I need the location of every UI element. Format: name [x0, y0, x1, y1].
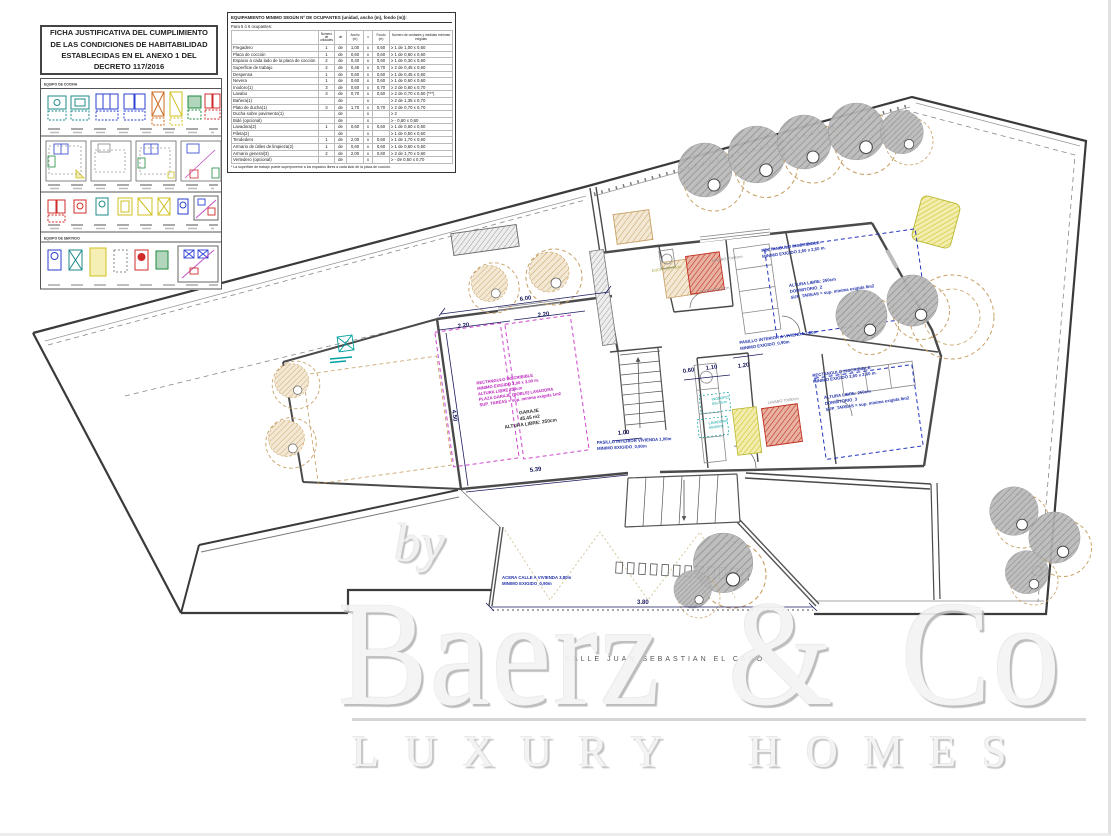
cell-units: 1 [319, 51, 335, 58]
annotation-hall1: PASILLO INTERIOR A VIVIENDA 1,20m MINIMO… [739, 329, 819, 351]
cell-de: de [335, 104, 347, 111]
cell-de: de [335, 45, 347, 52]
cell-depth [373, 130, 390, 137]
cell-depth: 0,60 [373, 45, 390, 52]
cell-item: Vertedero (opcional) [232, 157, 319, 164]
cell-width: 1,70 [347, 104, 364, 111]
cell-width: 0,45 [347, 64, 364, 71]
cell-width: 2,00 [347, 137, 364, 144]
table-row: Nevera 1 de 0,60 x 0,60 ≥ 1 de 0,60 x 0,… [232, 78, 453, 85]
equipment-table-footnote: * La superficie de trabajo puede superpo… [231, 165, 452, 170]
title-block: FICHA JUSTIFICATIVA DEL CUMPLIMIENTO DE … [40, 25, 218, 75]
dim-bath-a: 0.60 [682, 367, 695, 375]
col-header-units: Número de unidades [319, 31, 335, 45]
cell-units: 3 [319, 91, 335, 98]
annotation-line: ACERA CALLE A VIVIENDA 3,80m [502, 575, 571, 580]
table-row: Inodoro(1) 3 de 0,60 x 0,70 ≥ 2 de 0,60 … [232, 84, 453, 91]
cell-depth [373, 97, 390, 104]
legend-graphics: EQUIPO DE COCINA [40, 78, 222, 290]
table-row: Fregadero 1 de 1,00 x 0,60 ≥ 1 de 1,00 x… [232, 45, 453, 52]
equipment-table-title: EQUIPAMIENTO MINIMO SEGÚN Nº DE OCUPANTE… [231, 15, 452, 23]
street-label: CALLE JUAN SEBASTIAN EL CANO [565, 656, 765, 663]
cell-de: de [335, 84, 347, 91]
cell-required: ≥ 1 de 0,45 x 0,60 [390, 71, 453, 78]
cell-item: Espacio a cada lado de la placa de cocci… [232, 58, 319, 65]
cell-x: x [364, 144, 373, 151]
cell-x: x [364, 51, 373, 58]
cell-de: de [335, 144, 347, 151]
annotation-garage-rect: RECTANGULO INSCRIBIBLE MINIMO EXIGIDO 3,… [476, 369, 562, 407]
cell-de: de [335, 51, 347, 58]
cell-units [319, 130, 335, 137]
cell-required: ≥ 2 de 0,70 x 0,70 [390, 104, 453, 111]
cell-units: 1 [319, 137, 335, 144]
cell-x: x [364, 45, 373, 52]
cell-units [319, 111, 335, 118]
cell-required: ≥ 2 de 1,35 x 0,70 [390, 97, 453, 104]
title-block-text: FICHA JUSTIFICATIVA DEL CUMPLIMIENTO DE … [48, 27, 210, 73]
cell-depth [373, 111, 390, 118]
cell-width [347, 130, 364, 137]
cell-depth: 0,60 [373, 150, 390, 157]
cell-depth: 0,70 [373, 64, 390, 71]
cell-required: ≥ 1 de 1,00 x 0,60 [390, 45, 453, 52]
cell-units: 1 [319, 144, 335, 151]
cell-required: ≥ 2 de 1,70 x 0,60 [390, 150, 453, 157]
cell-x: x [364, 97, 373, 104]
equipment-table-grid: Número de unidades de Ancho (m) x Fondo … [231, 30, 453, 164]
table-row: Vertedero (opcional) de x ≥ - de 0,50 x … [232, 157, 453, 164]
cell-required: ≥ - de 0,50 x 0,70 [390, 157, 453, 164]
cell-de: de [335, 150, 347, 157]
floorplan-sheet: 6.00 2.20 2.20 4.50 5.39 1.20 0.60 1.10 … [0, 0, 1111, 836]
cell-units [319, 97, 335, 104]
garden-bench-yellow [911, 195, 962, 250]
col-header-item [232, 31, 319, 45]
driveway [461, 490, 819, 606]
shower-red-hatch [762, 404, 803, 447]
dim-garage-bottom: 5.39 [530, 467, 543, 474]
cell-item: Plato de ducha(1) [232, 104, 319, 111]
annotation-entry: ACERA CALLE A VIVIENDA 3,80m MINIMO EXIG… [502, 575, 571, 586]
cell-width: 0,60 [347, 124, 364, 131]
cell-de: de [335, 111, 347, 118]
patio-dashed-outline [303, 356, 452, 484]
cell-x: x [364, 58, 373, 65]
cell-required: ≥ 1 de 1,70 x 0,60 [390, 137, 453, 144]
cell-x: x [364, 130, 373, 137]
cell-de: de [335, 130, 347, 137]
cell-x: x [364, 91, 373, 98]
col-header-de: de [335, 31, 347, 45]
annotation-dorm3-rect: RECTANGULO INSCRIBIBLE MINIMO EXIGIDO 2,… [812, 364, 877, 384]
cell-units: 2 [319, 58, 335, 65]
cell-x: x [364, 84, 373, 91]
cell-item: Pileta(2) [232, 130, 319, 137]
cell-width: 2,00 [347, 150, 364, 157]
cell-item: Armario general(3) [232, 150, 319, 157]
cell-item: Bañera(1) [232, 97, 319, 104]
cell-x: x [364, 64, 373, 71]
cell-x: x [364, 78, 373, 85]
equipment-table: EQUIPAMIENTO MINIMO SEGÚN Nº DE OCUPANTE… [227, 12, 456, 173]
col-header-width: Ancho (m) [347, 31, 364, 45]
cell-depth: 0,60 [373, 144, 390, 151]
cell-de: de [335, 97, 347, 104]
cell-width: 0,60 [347, 144, 364, 151]
table-row: Armario general(3) 2 de 2,00 x 0,60 ≥ 2 … [232, 150, 453, 157]
cell-depth: 0,70 [373, 84, 390, 91]
cell-width: 0,60 [347, 51, 364, 58]
cell-width [347, 97, 364, 104]
trees [266, 103, 1092, 618]
cell-required: ≥ 1 de 0,60 x 0,60 [390, 124, 453, 131]
cell-required: ≥ 2 de 0,70 x 0,50 (***) [390, 91, 453, 98]
cell-required: ≥ 2 de 0,60 x 0,70 [390, 84, 453, 91]
cell-depth: 0,60 [373, 51, 390, 58]
cell-de: de [335, 71, 347, 78]
cell-width: 0,60 [347, 71, 364, 78]
table-row: Superficie de trabajo 2 de 0,45 x 0,70 ≥… [232, 64, 453, 71]
cell-item: Armario de útiles de limpieza(2) [232, 144, 319, 151]
legend-header-kitchen: EQUIPO DE COCINA [44, 83, 78, 87]
cell-required: ≥ 1 de 0,60 x 0,60 [390, 144, 453, 151]
cell-item: Tendedero [232, 137, 319, 144]
cell-units: 2 [319, 64, 335, 71]
cell-item: Despensa [232, 71, 319, 78]
cell-units: 1 [319, 45, 335, 52]
table-row: Ducha sobre pavimento(1) de x ≥ 2 [232, 111, 453, 118]
table-row: Armario de útiles de limpieza(2) 1 de 0,… [232, 144, 453, 151]
cell-de: de [335, 117, 347, 124]
cell-de: de [335, 58, 347, 65]
cell-width [347, 111, 364, 118]
cell-width [347, 157, 364, 164]
cell-de: de [335, 64, 347, 71]
annotation-garage: GARAJE 45,45 m2 ALTURA LIBRE: 250cm [502, 405, 557, 430]
cell-x: x [364, 124, 373, 131]
cell-de: de [335, 78, 347, 85]
dim-hall2-width: 1.00 [618, 430, 631, 437]
cell-required: ≥ 1 de 0,60 x 0,60 [390, 51, 453, 58]
equipment-table-subtitle: Para 5 ó 6 ocupantes: [231, 24, 452, 29]
table-row: Pileta(2) de x ≥ 1 de 0,50 x 0,60 [232, 130, 453, 137]
col-header-required: Número de unidades y medidas mínimas exi… [390, 31, 453, 45]
dim-entry-width: 3.80 [637, 600, 649, 606]
cell-depth: 0,60 [373, 124, 390, 131]
label-inodoro: INODORO 60x70cm [711, 395, 729, 406]
cell-x: x [364, 157, 373, 164]
cell-depth: 0,50 [373, 91, 390, 98]
cell-depth: 0,60 [373, 78, 390, 85]
garage-walls [283, 187, 628, 489]
cell-units [319, 157, 335, 164]
cell-item: Lavabo [232, 91, 319, 98]
cell-units: 1 [319, 78, 335, 85]
legend-header-service: EQUIPO DE SERVICIO [44, 237, 80, 241]
cell-depth: 0,60 [373, 58, 390, 65]
cell-depth: 0,60 [373, 137, 390, 144]
annotation-line: MINIMO EXIGIDO_0,90m [502, 581, 552, 586]
label-lavadora: LAVADORA 60x60cm [708, 419, 729, 430]
cell-x: x [364, 117, 373, 124]
cell-required: ≥ - 0,60 x 0,60 [390, 117, 453, 124]
cell-item: Placa de cocción [232, 51, 319, 58]
cell-width: 0,60 [347, 84, 364, 91]
annotation-hall2: PASILLO INTERIOR VIVIENDA 1,00m MINIMO E… [597, 436, 672, 451]
cell-units: 2 [319, 150, 335, 157]
table-row: Bañera(1) de x ≥ 2 de 1,35 x 0,70 [232, 97, 453, 104]
cell-width: 0,40 [347, 58, 364, 65]
cell-x: x [364, 71, 373, 78]
cell-required: ≥ 1 de 0,30 x 0,60 [390, 58, 453, 65]
cell-depth [373, 117, 390, 124]
cell-item: Bidé (opcional) [232, 117, 319, 124]
dim-bay-left: 2.20 [457, 322, 470, 330]
table-row: Bidé (opcional) de x ≥ - 0,60 x 0,60 [232, 117, 453, 124]
cell-de: de [335, 157, 347, 164]
legend-panel: EQUIPO DE COCINA [40, 78, 222, 290]
cell-units: 1 [319, 71, 335, 78]
table-row: Despensa 1 de 0,60 x 0,60 ≥ 1 de 0,45 x … [232, 71, 453, 78]
cell-item: Lavadora(2) [232, 124, 319, 131]
annotation-dorm2-rect: RECTANGULO INSCRIBIBLE MINIMO EXIGIDO 2,… [761, 239, 826, 259]
cell-item: Fregadero [232, 45, 319, 52]
cell-width: 0,60 [347, 78, 364, 85]
cell-required: ≥ 1 de 0,60 x 0,60 [390, 78, 453, 85]
cell-de: de [335, 124, 347, 131]
table-row: Tendedero 1 de 2,00 x 0,60 ≥ 1 de 1,70 x… [232, 137, 453, 144]
table-row: Placa de cocción 1 de 0,60 x 0,60 ≥ 1 de… [232, 51, 453, 58]
annotation-line: 60x60cm [709, 424, 724, 430]
cell-width [347, 117, 364, 124]
annotation-line: 60x70cm [712, 400, 727, 406]
cell-required: ≥ 1 de 0,50 x 0,60 [390, 130, 453, 137]
col-header-x: x [364, 31, 373, 45]
table-row: Espacio a cada lado de la placa de cocci… [232, 58, 453, 65]
dim-hall-width: 1.20 [737, 362, 750, 370]
stairs-main [618, 348, 666, 434]
cell-x: x [364, 150, 373, 157]
table-row: Lavadora(2) 1 de 0,60 x 0,60 ≥ 1 de 0,60… [232, 124, 453, 131]
cell-x: x [364, 137, 373, 144]
cell-item: Nevera [232, 78, 319, 85]
col-header-depth: Fondo (m) [373, 31, 390, 45]
cell-units: 3 [319, 84, 335, 91]
cell-depth [373, 157, 390, 164]
cell-units [319, 117, 335, 124]
cell-width: 0,70 [347, 91, 364, 98]
cell-x: x [364, 104, 373, 111]
cell-de: de [335, 91, 347, 98]
cell-depth: 0,70 [373, 104, 390, 111]
cell-de: de [335, 137, 347, 144]
cell-width: 1,00 [347, 45, 364, 52]
cell-units: 1 [319, 124, 335, 131]
dim-garage-width: 6.00 [519, 295, 532, 303]
cell-item: Ducha sobre pavimento(1) [232, 111, 319, 118]
table-row: Lavabo 3 de 0,70 x 0,50 ≥ 2 de 0,70 x 0,… [232, 91, 453, 98]
kitchen-counter-yellow [732, 407, 761, 456]
table-row: Plato de ducha(1) 3 de 1,70 x 0,70 ≥ 2 d… [232, 104, 453, 111]
cell-x: x [364, 111, 373, 118]
cell-required: ≥ 2 [390, 111, 453, 118]
cell-item: Superficie de trabajo [232, 64, 319, 71]
cell-item: Inodoro(1) [232, 84, 319, 91]
cell-required: ≥ 2 de 0,45 x 0,60 [390, 64, 453, 71]
stairs-entry [625, 474, 740, 527]
spa-tan-hatch [613, 210, 653, 245]
cell-units: 3 [319, 104, 335, 111]
cell-depth: 0,60 [373, 71, 390, 78]
